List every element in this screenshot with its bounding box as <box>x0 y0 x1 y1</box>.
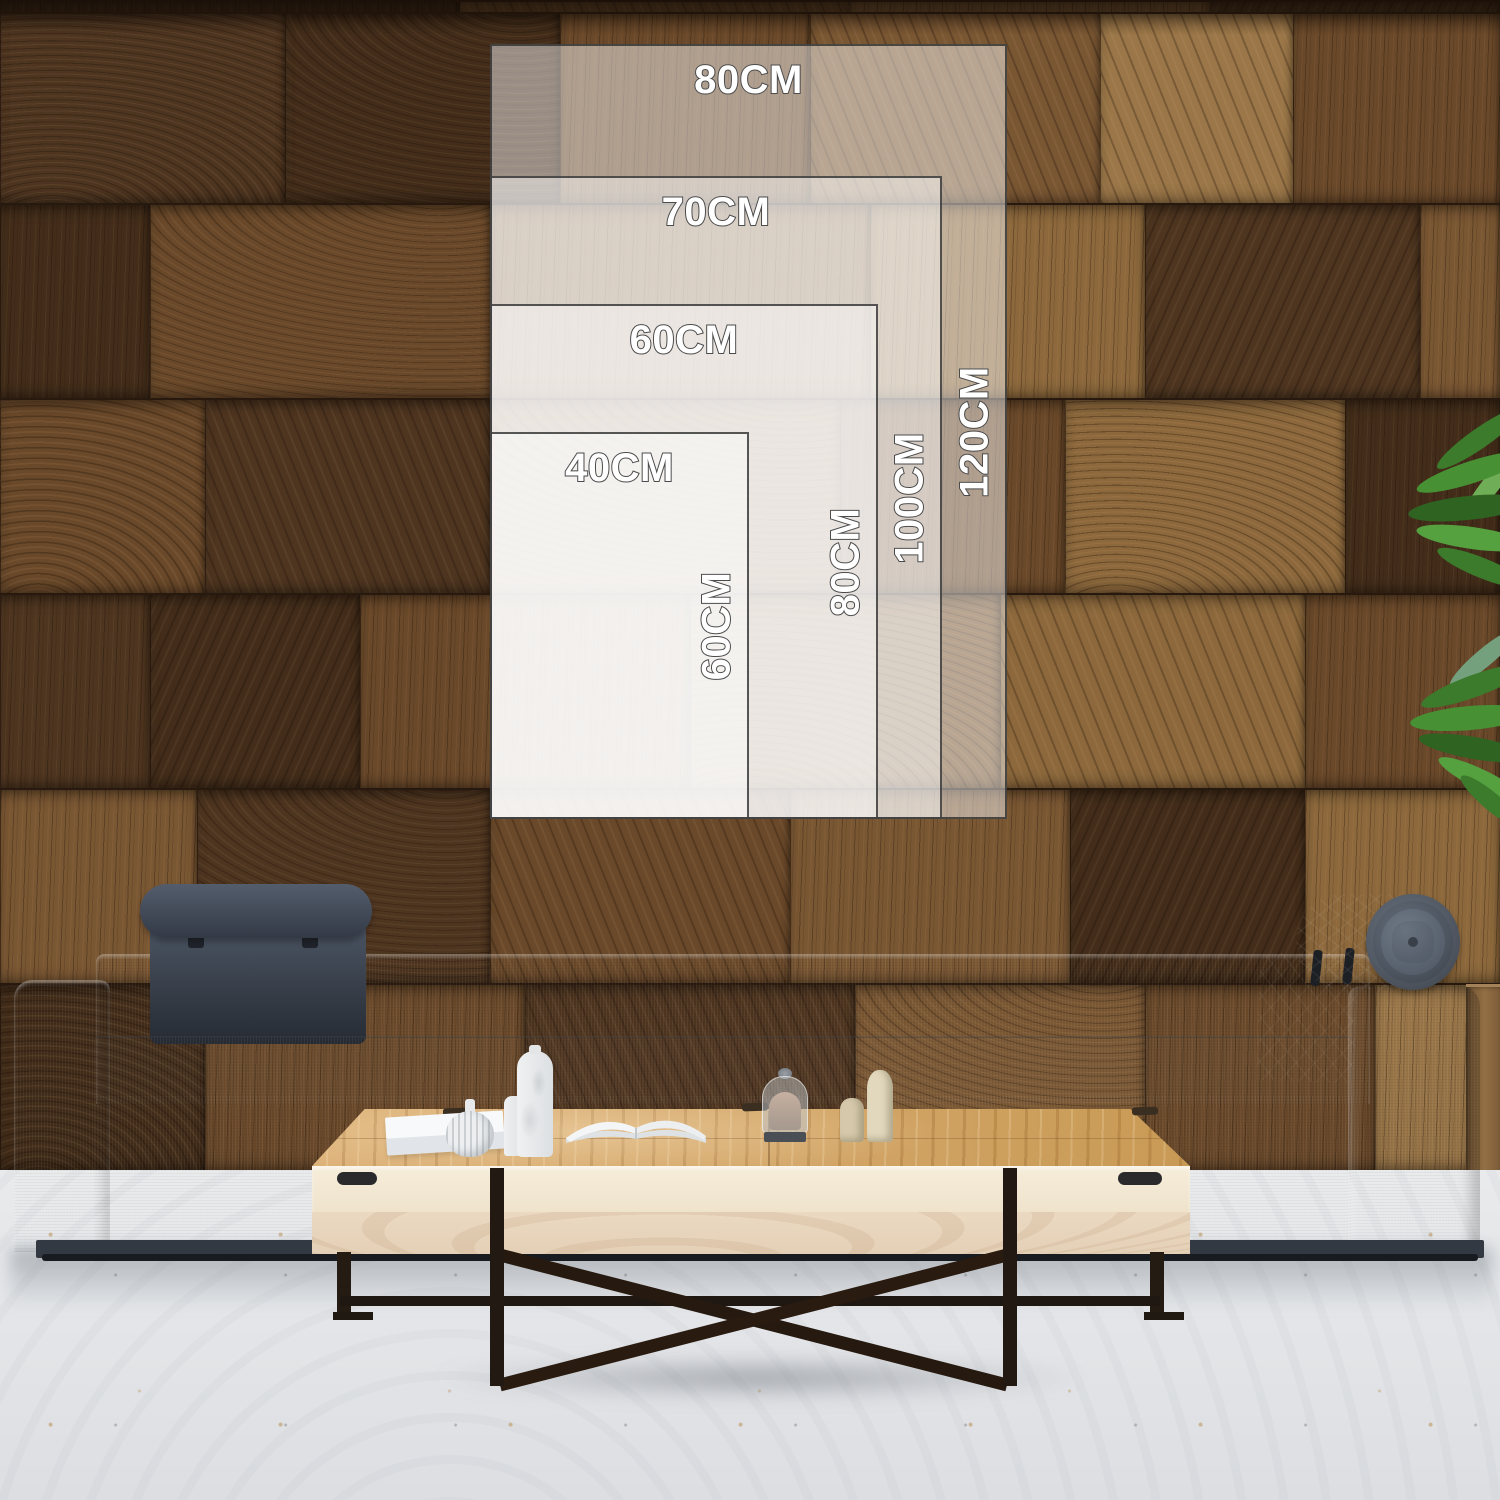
wood-block <box>1000 595 1305 788</box>
size-height-label: 120CM <box>953 352 998 512</box>
potted-plant <box>1402 386 1500 818</box>
wood-block <box>150 205 490 398</box>
cloche-glass <box>762 1076 808 1134</box>
candle-tall <box>867 1070 893 1142</box>
size-width-label: 70CM <box>492 190 940 235</box>
wall-row <box>0 0 1500 12</box>
size-height-label: 100CM <box>888 418 933 578</box>
open-book <box>560 1104 712 1148</box>
headrest-left-panel <box>150 924 366 1044</box>
wood-block <box>0 595 150 788</box>
wood-block <box>1293 14 1500 203</box>
wood-block <box>1065 400 1345 593</box>
glass-cloche <box>762 1068 808 1142</box>
wood-block <box>850 2 1210 12</box>
size-option-40x60: 40CM 60CM <box>490 432 749 819</box>
wood-block <box>150 595 360 788</box>
headrest-left-roll <box>140 884 372 938</box>
candle-short <box>840 1098 864 1142</box>
size-width-label: 40CM <box>492 446 747 491</box>
size-height-label: 80CM <box>824 482 869 642</box>
product-size-guide-scene: 80CM 120CM 70CM 100CM 60CM 80CM 40CM 60C… <box>0 0 1500 1500</box>
table-metal-frame <box>300 1160 1200 1400</box>
wood-block <box>0 14 285 203</box>
wood-block <box>1210 2 1500 12</box>
wood-block <box>205 400 490 593</box>
wood-block <box>460 2 850 12</box>
gourd-vase <box>446 1099 494 1157</box>
wood-block <box>1145 205 1420 398</box>
bolster-pillow-end-cap <box>1366 894 1460 990</box>
cloche-base <box>764 1132 806 1142</box>
wood-block <box>0 2 460 12</box>
wood-block <box>1100 14 1293 203</box>
sofa-armrest-left <box>14 980 110 1252</box>
table-top-slot <box>1132 1107 1158 1116</box>
size-height-label: 60CM <box>695 546 740 706</box>
wood-block <box>0 400 205 593</box>
size-width-label: 60CM <box>492 318 876 363</box>
vase-body <box>446 1111 494 1157</box>
vase-lip <box>529 1045 541 1054</box>
sofa-seat-top <box>94 1036 1352 1102</box>
size-width-label: 80CM <box>492 58 1005 103</box>
bottle-vase <box>517 1051 553 1157</box>
wood-block <box>0 205 150 398</box>
sofa-armrest-right <box>1348 986 1480 1254</box>
wood-block <box>1420 205 1500 398</box>
